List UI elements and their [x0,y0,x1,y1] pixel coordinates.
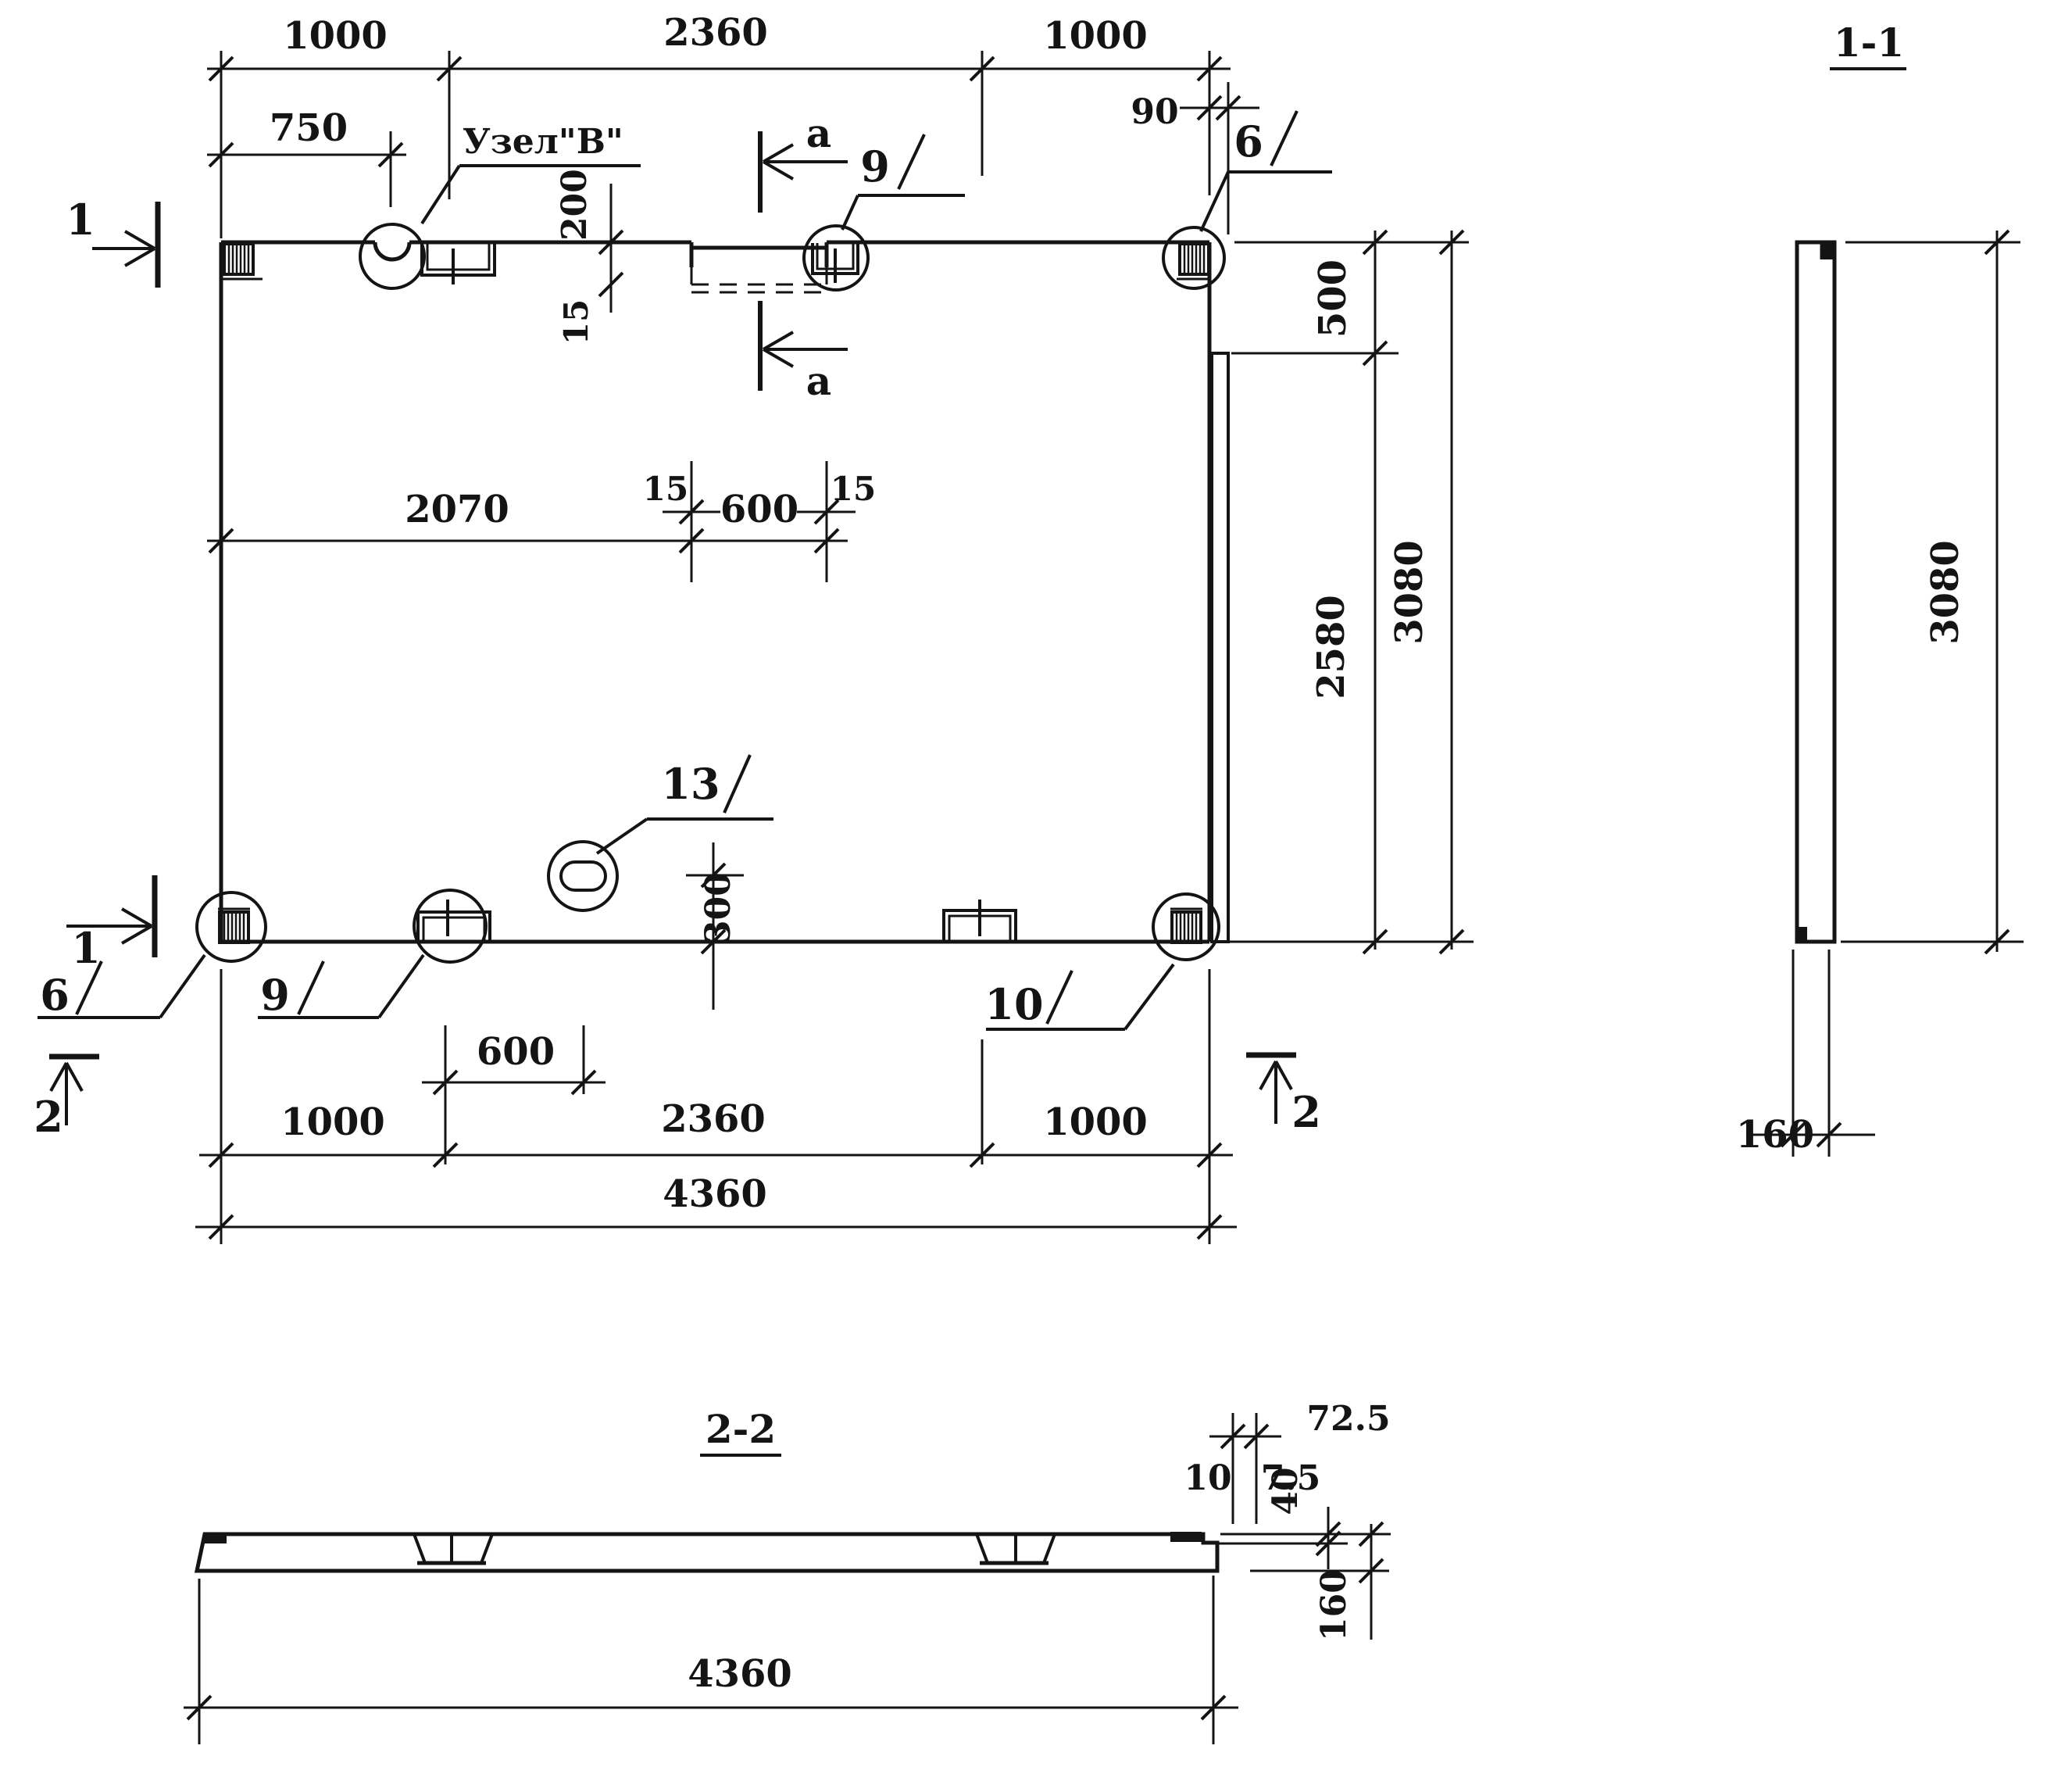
dim-200-15: 200 15 [555,169,623,345]
section-mark-1-top: 1 [66,195,158,288]
callout-6-top: 6 [1201,111,1332,231]
callout-6-bottom: 6 [38,955,205,1020]
section-a-label-top: a [806,110,831,156]
dim-160-section-1-1-label: 160 [1736,1113,1814,1157]
hatch-anchor-icon-top-left [224,244,253,274]
dim-500-label: 500 [1311,259,1355,338]
section-1-label-bottom: 1 [71,923,101,973]
section-2-2-title: 2-2 [706,1406,776,1452]
callout-9-bottom: 9 [258,955,423,1020]
panel-drawing-svg: 1000 2360 1000 750 90 200 15 2070 600 [0,0,2072,1767]
edge-recess-top-1 [422,243,495,284]
dim-3080-section-label: 3080 [1924,540,1967,645]
dim-1000-top-right: 1000 [1043,14,1148,58]
dim-2360-top: 2360 [663,11,768,55]
detail-circle-node-b [360,224,424,288]
section-a-label-bottom: a [806,358,831,404]
dim-90-label: 90 [1131,92,1178,132]
callout-13-label: 13 [661,759,720,809]
dim-300-label: 300 [698,872,738,944]
section-mark-2-left: 2 [34,1057,99,1142]
dim-160-section-2-2-label: 160 [1314,1569,1354,1641]
dim-2580-label: 2580 [1309,595,1353,699]
section-1-1: 1-1 3080 160 [1736,20,2024,1157]
section-1-1-rebate-top [1822,244,1834,259]
dim-15-left-label: 15 [643,470,688,508]
dim-160-section-2-2: 160 [1250,1522,1389,1641]
hatch-anchor-offsets [218,279,1210,909]
dim-3080-section: 3080 [1841,231,2024,953]
callout-6-bottom-label: 6 [40,970,70,1020]
section-1-1-title: 1-1 [1834,20,1904,66]
dim-2070-label: 2070 [405,488,509,531]
dim-15-right-label: 15 [831,470,876,508]
dim-2360-bottom: 2360 [661,1097,766,1141]
callout-6-top-label: 6 [1234,116,1263,166]
section-2-2-rebate-right [1170,1532,1202,1542]
dim-4360-section-label: 4360 [688,1652,792,1696]
callout-9-top-label: 9 [860,141,890,191]
dim-15-top-label: 15 [557,299,595,345]
section-2-2-notch-1 [414,1534,492,1563]
dim-10-label: 10 [1184,1458,1231,1498]
hatch-anchor-icon-top-right [1180,244,1209,274]
right-edge-strip [1212,353,1228,942]
section-2-2: 2-2 72.5 10 7.5 40 [184,1399,1391,1744]
plan-view: 1000 2360 1000 750 90 200 15 2070 600 [34,11,1474,1244]
dim-4360-section: 4360 [184,1576,1238,1744]
dim-72-5-label: 72.5 [1306,1399,1390,1439]
dim-750-label: 750 [270,106,348,150]
callout-10-bottom-label: 10 [984,979,1043,1029]
section-mark-a-top: a [760,110,848,213]
callout-9-bottom-label: 9 [260,970,290,1020]
dim-40: 40 [1219,1467,1391,1569]
dim-600-mid-label: 600 [720,488,798,531]
hatch-anchor-icon-bottom-left [220,912,248,943]
section-mark-a-bottom: a [760,301,848,404]
callout-9-top: 9 [842,134,965,230]
dim-1000-top-left: 1000 [283,14,388,58]
dim-300: 300 [686,842,744,1010]
drawing-sheet: 1000 2360 1000 750 90 200 15 2070 600 [0,0,2072,1767]
dim-row-middle: 2070 600 15 15 [207,461,876,582]
dim-40-label: 40 [1266,1467,1306,1515]
section-2-label-right: 2 [1291,1087,1321,1137]
callout-node-b-label: Узел"В" [463,122,623,162]
section-1-1-panel [1797,242,1834,942]
dim-200-label: 200 [555,169,595,241]
dim-1000-bottom-right: 1000 [1043,1100,1148,1144]
section-mark-1-bottom: 1 [66,875,155,973]
dim-4360-plan-label: 4360 [663,1172,767,1216]
dim-1000-bottom-left: 1000 [280,1100,385,1144]
lifting-hole [548,842,617,910]
dim-3080-plan-label: 3080 [1388,540,1431,645]
callout-node-b: Узел"В" [422,122,641,224]
section-2-2-rebate-left [205,1534,227,1543]
edge-recess-bottom-2 [944,900,1016,941]
dim-row-bottom: 600 1000 2360 1000 4360 [195,969,1237,1244]
section-2-2-notch-2 [977,1534,1055,1563]
section-1-label-top: 1 [66,195,95,245]
callout-13: 13 [597,755,773,853]
hatch-anchor-icon-bottom-right [1172,912,1201,943]
panel-outline [221,242,1209,942]
section-1-1-rebate-bottom [1797,927,1807,942]
section-mark-2-right: 2 [1246,1055,1321,1137]
dim-row-top: 1000 2360 1000 [207,11,1231,238]
dim-750: 750 [207,106,406,207]
callout-10-bottom: 10 [984,964,1174,1029]
dim-600-bottom-label: 600 [477,1030,555,1074]
dim-col-right: 500 2580 3080 [1219,231,1474,953]
detail-circle-bottom-9 [414,890,486,962]
dim-160-section-1-1: 160 [1736,950,1875,1157]
section-2-2-panel [197,1534,1217,1571]
section-2-label-left: 2 [34,1092,63,1142]
